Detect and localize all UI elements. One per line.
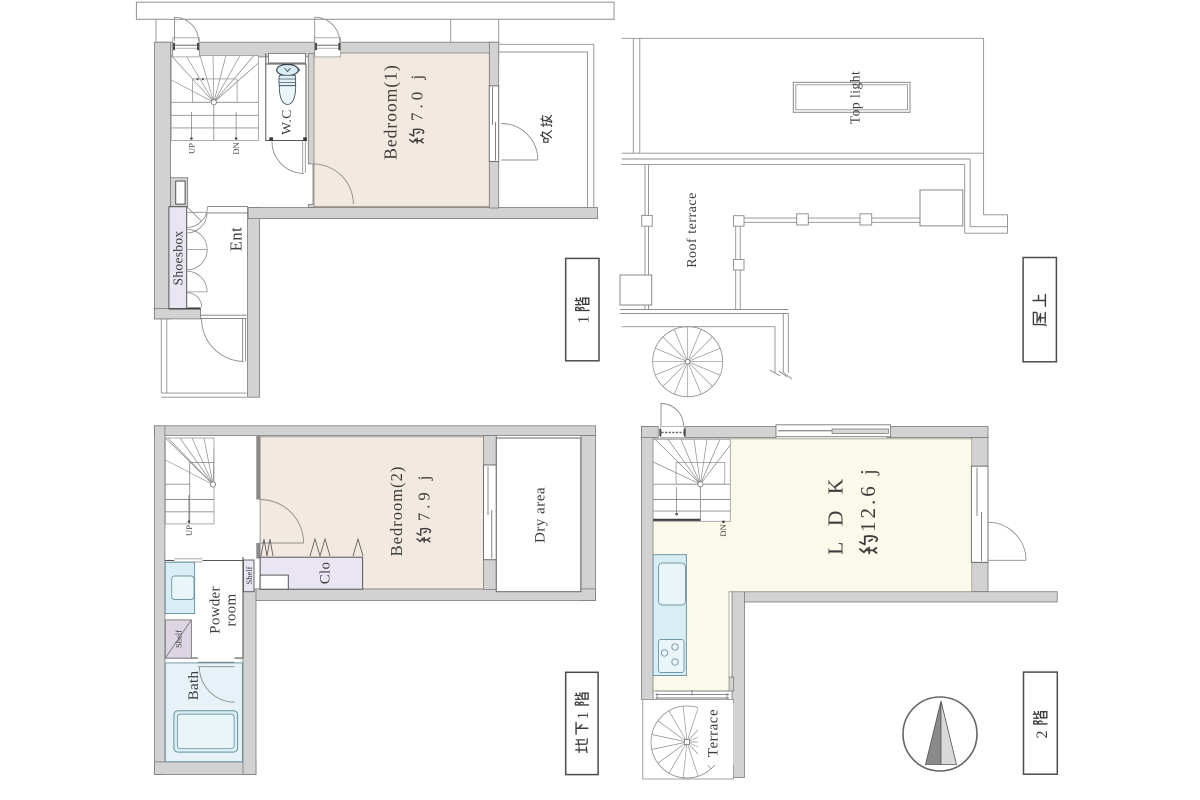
svg-text:Shoesbox: Shoesbox: [170, 231, 185, 286]
svg-text:Shelf: Shelf: [244, 566, 254, 584]
svg-text:Terrace: Terrace: [706, 709, 722, 757]
svg-text:Dry area: Dry area: [533, 487, 549, 543]
svg-text:Top light: Top light: [848, 71, 863, 124]
svg-text:W.C: W.C: [279, 109, 294, 134]
svg-text:7.0 j: 7.0 j: [407, 71, 426, 121]
svg-text:2: 2: [1034, 731, 1051, 739]
svg-text:UP: UP: [186, 143, 196, 154]
svg-text:Roof terrace: Roof terrace: [685, 192, 700, 268]
svg-text:Clo: Clo: [318, 562, 334, 585]
svg-text:Ent: Ent: [226, 227, 245, 251]
svg-text:Powder: Powder: [208, 586, 224, 634]
svg-text:L D K: L D K: [824, 473, 848, 555]
svg-text:Bath: Bath: [186, 671, 202, 701]
svg-text:room: room: [224, 594, 240, 627]
svg-text:12.6 j: 12.6 j: [856, 466, 880, 532]
svg-text:Bedroom(2): Bedroom(2): [387, 466, 406, 557]
svg-text:Shelf: Shelf: [173, 630, 183, 648]
svg-text:1: 1: [575, 712, 592, 720]
svg-text:7.9 j: 7.9 j: [414, 472, 433, 521]
svg-text:Bedroom(1): Bedroom(1): [381, 64, 401, 160]
svg-text:DN: DN: [231, 142, 241, 154]
svg-text:1: 1: [576, 316, 593, 324]
svg-text:DN: DN: [718, 524, 728, 536]
svg-text:UP: UP: [184, 525, 194, 536]
